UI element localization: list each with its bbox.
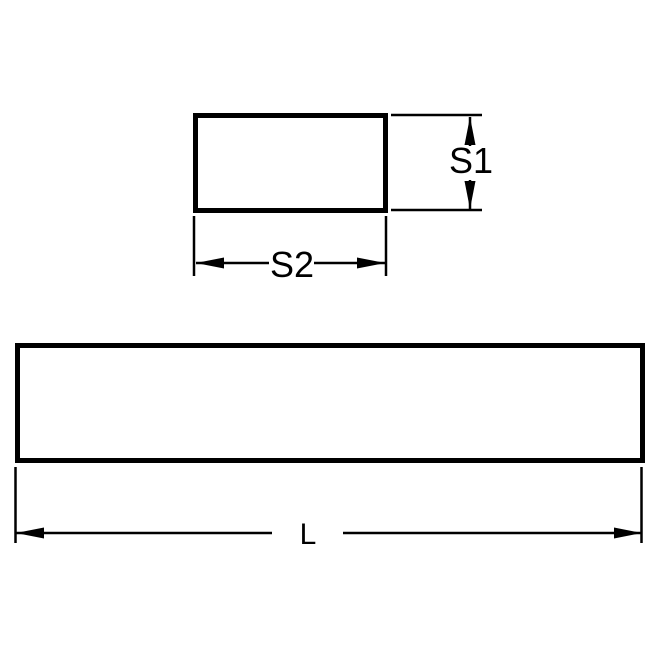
technical-drawing-canvas: S1 S2: [0, 0, 670, 670]
s2-arrowhead-left: [196, 258, 224, 269]
cross-section-view: S1 S2: [194, 115, 493, 285]
l-arrowhead-right: [614, 528, 642, 539]
s1-dimension-label: S1: [449, 140, 493, 181]
keystock-dimension-drawing: S1 S2: [0, 0, 670, 670]
s2-arrowhead-right: [357, 258, 385, 269]
s2-dimension-label: S2: [270, 244, 314, 285]
s1-arrowhead-down: [465, 181, 476, 209]
l-extension-lines: [16, 467, 642, 543]
l-arrowhead-left: [16, 528, 44, 539]
side-view: L: [16, 346, 643, 552]
cross-section-rect: [196, 116, 386, 211]
l-dimension-label: L: [300, 518, 317, 551]
side-view-rect: [18, 346, 643, 461]
